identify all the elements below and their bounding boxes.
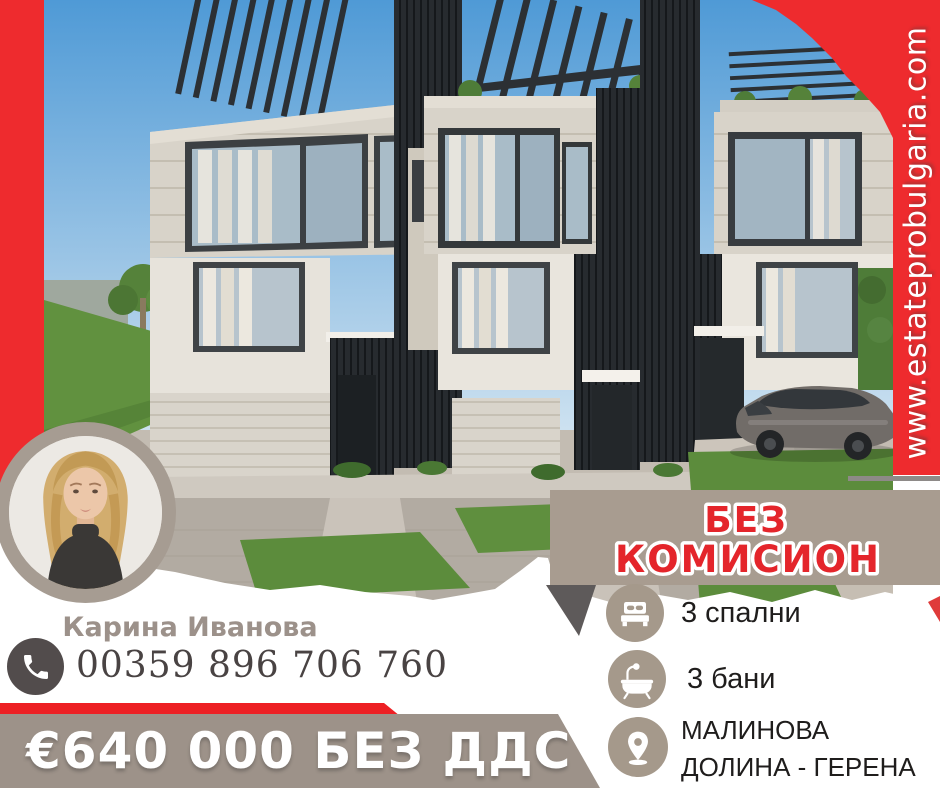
window [438, 128, 592, 248]
phone-number: 00359 896 706 760 [76, 645, 448, 686]
agent-name: Карина Иванова [60, 612, 320, 643]
poster: www.estateprobulgaria.com БЕЗ КОМИСИОН [0, 0, 940, 788]
slat-tower [640, 0, 700, 462]
feature-bathrooms [608, 650, 666, 708]
agent-avatar [0, 422, 176, 603]
bathtub-icon [615, 657, 659, 701]
feature-bedrooms [606, 584, 664, 642]
window [756, 262, 858, 358]
no-commission-line1: БЕЗ [704, 500, 788, 541]
no-commission-banner: БЕЗ КОМИСИОН [550, 490, 940, 585]
window [452, 262, 550, 354]
phone-badge [7, 638, 64, 695]
feature-bathrooms-label: 3 бани [687, 663, 775, 696]
window [728, 132, 862, 246]
website-url: www.estateprobulgaria.com [899, 27, 934, 460]
window [193, 262, 305, 352]
feature-bedrooms-label: 3 спални [681, 597, 801, 630]
stripe-shadow-line [848, 476, 940, 481]
bed-icon [613, 591, 657, 635]
no-commission-line2: КОМИСИОН [615, 538, 881, 581]
phone-icon [20, 651, 52, 683]
agent-portrait [9, 436, 162, 589]
feature-location-label: МАЛИНОВА ДОЛИНА - ГЕРЕНА [681, 712, 931, 786]
location-pin-icon [615, 724, 661, 770]
feature-location [608, 717, 668, 777]
price-banner: €640 000 БЕЗ ДДС [0, 714, 600, 788]
price-text: €640 000 БЕЗ ДДС [0, 722, 571, 780]
